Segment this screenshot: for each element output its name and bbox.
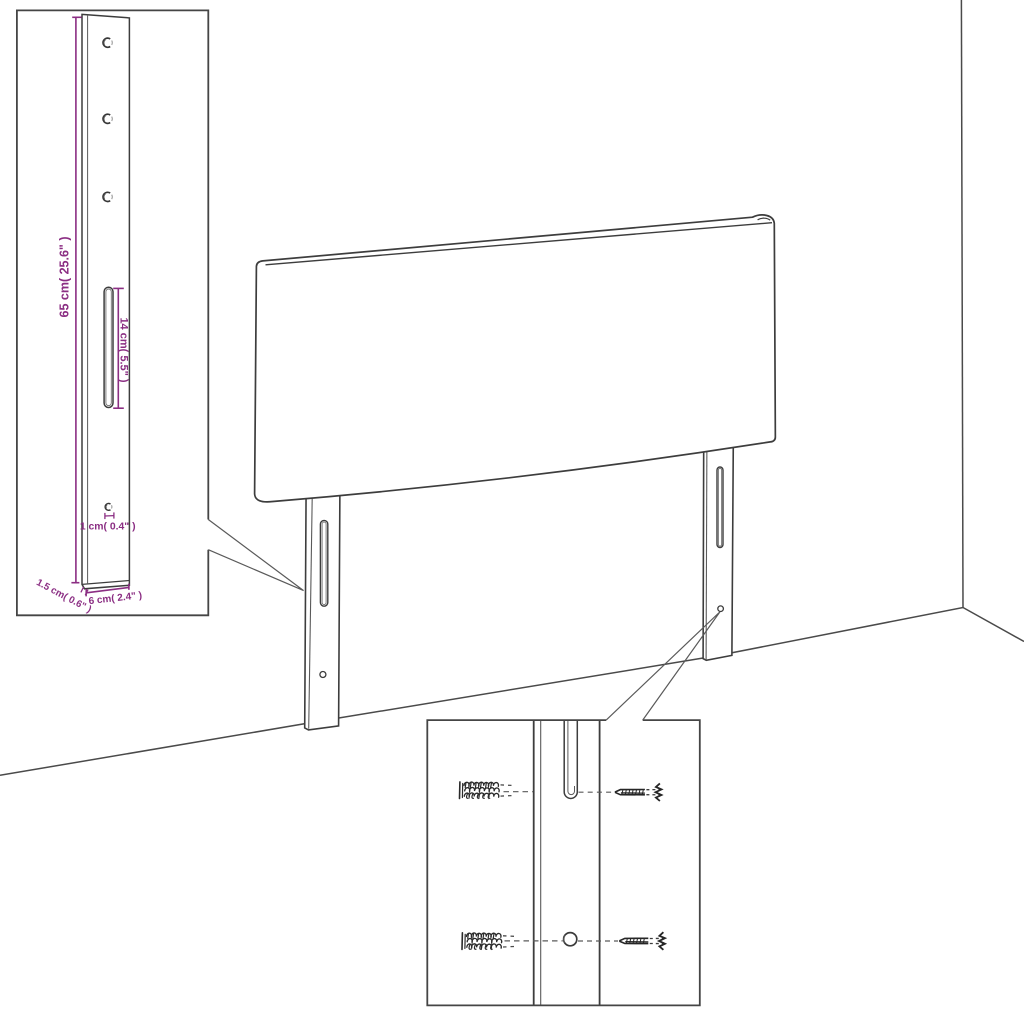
svg-text:1 cm( 0.4" ): 1 cm( 0.4" )	[80, 522, 136, 533]
svg-text:65 cm( 25.6" ): 65 cm( 25.6" )	[58, 237, 72, 318]
svg-text:6 cm( 2.4" ): 6 cm( 2.4" )	[88, 590, 143, 607]
svg-text:14 cm( 5.5" ): 14 cm( 5.5" )	[117, 317, 129, 382]
